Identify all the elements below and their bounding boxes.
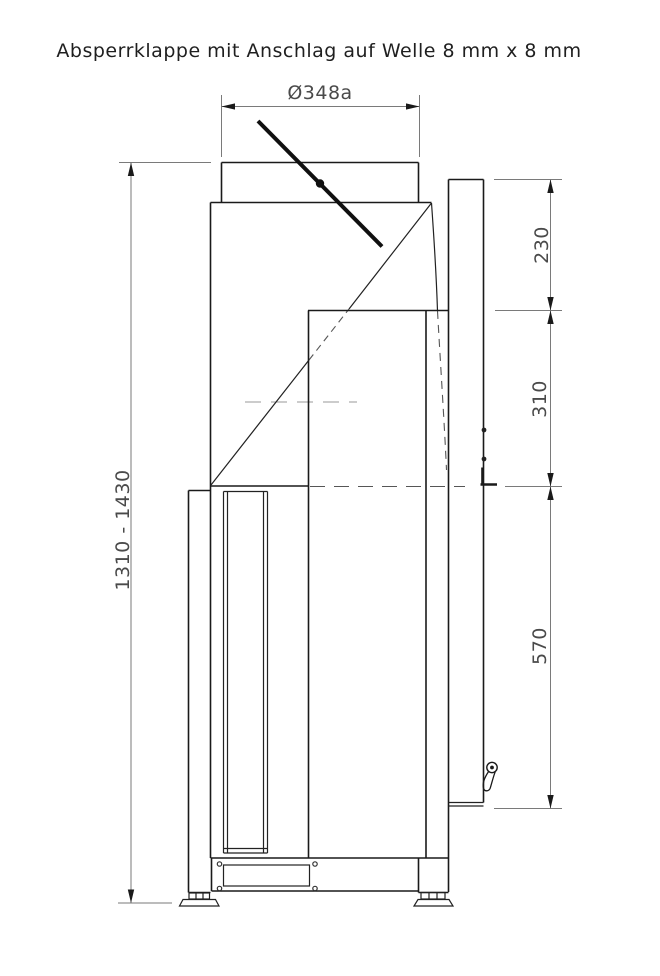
screw-icon [313, 886, 317, 890]
dimension-top-diameter: Ø348a [222, 82, 420, 157]
pull-ring [483, 762, 497, 791]
shaft-pivot [316, 179, 324, 187]
vent-slot [224, 865, 310, 886]
left-leg-column [189, 491, 211, 893]
inner-box [308, 311, 448, 859]
dim-label-diameter: Ø348a [287, 82, 352, 104]
hinge-pin-icon [482, 457, 487, 462]
drawing-canvas: Absperrklappe mit Anschlag auf Welle 8 m… [0, 0, 660, 976]
upper-hood-box [211, 203, 438, 859]
dimension-right-stack: 230 310 570 [494, 180, 562, 809]
dimension-overall-height: 1310 - 1430 [112, 163, 211, 904]
hidden-and-center-lines [245, 309, 465, 487]
right-adjustable-foot [414, 893, 453, 907]
dim-label-230: 230 [531, 226, 553, 264]
dim-label-overall-height: 1310 - 1430 [112, 469, 134, 590]
left-slide-channel [224, 492, 268, 854]
damper-blade [258, 121, 382, 247]
screw-icon [217, 862, 221, 866]
dim-label-310: 310 [529, 380, 551, 418]
base-plinth [211, 858, 449, 893]
hinge-pin-icon [482, 428, 487, 433]
drawing-title: Absperrklappe mit Anschlag auf Welle 8 m… [56, 40, 581, 62]
stop-bracket [481, 468, 498, 485]
dim-label-570: 570 [529, 627, 551, 665]
screw-icon [313, 862, 317, 866]
rear-panel [449, 180, 484, 893]
left-adjustable-foot [180, 893, 220, 906]
technical-drawing-page: Absperrklappe mit Anschlag auf Welle 8 m… [0, 0, 660, 976]
screw-icon [217, 886, 221, 890]
